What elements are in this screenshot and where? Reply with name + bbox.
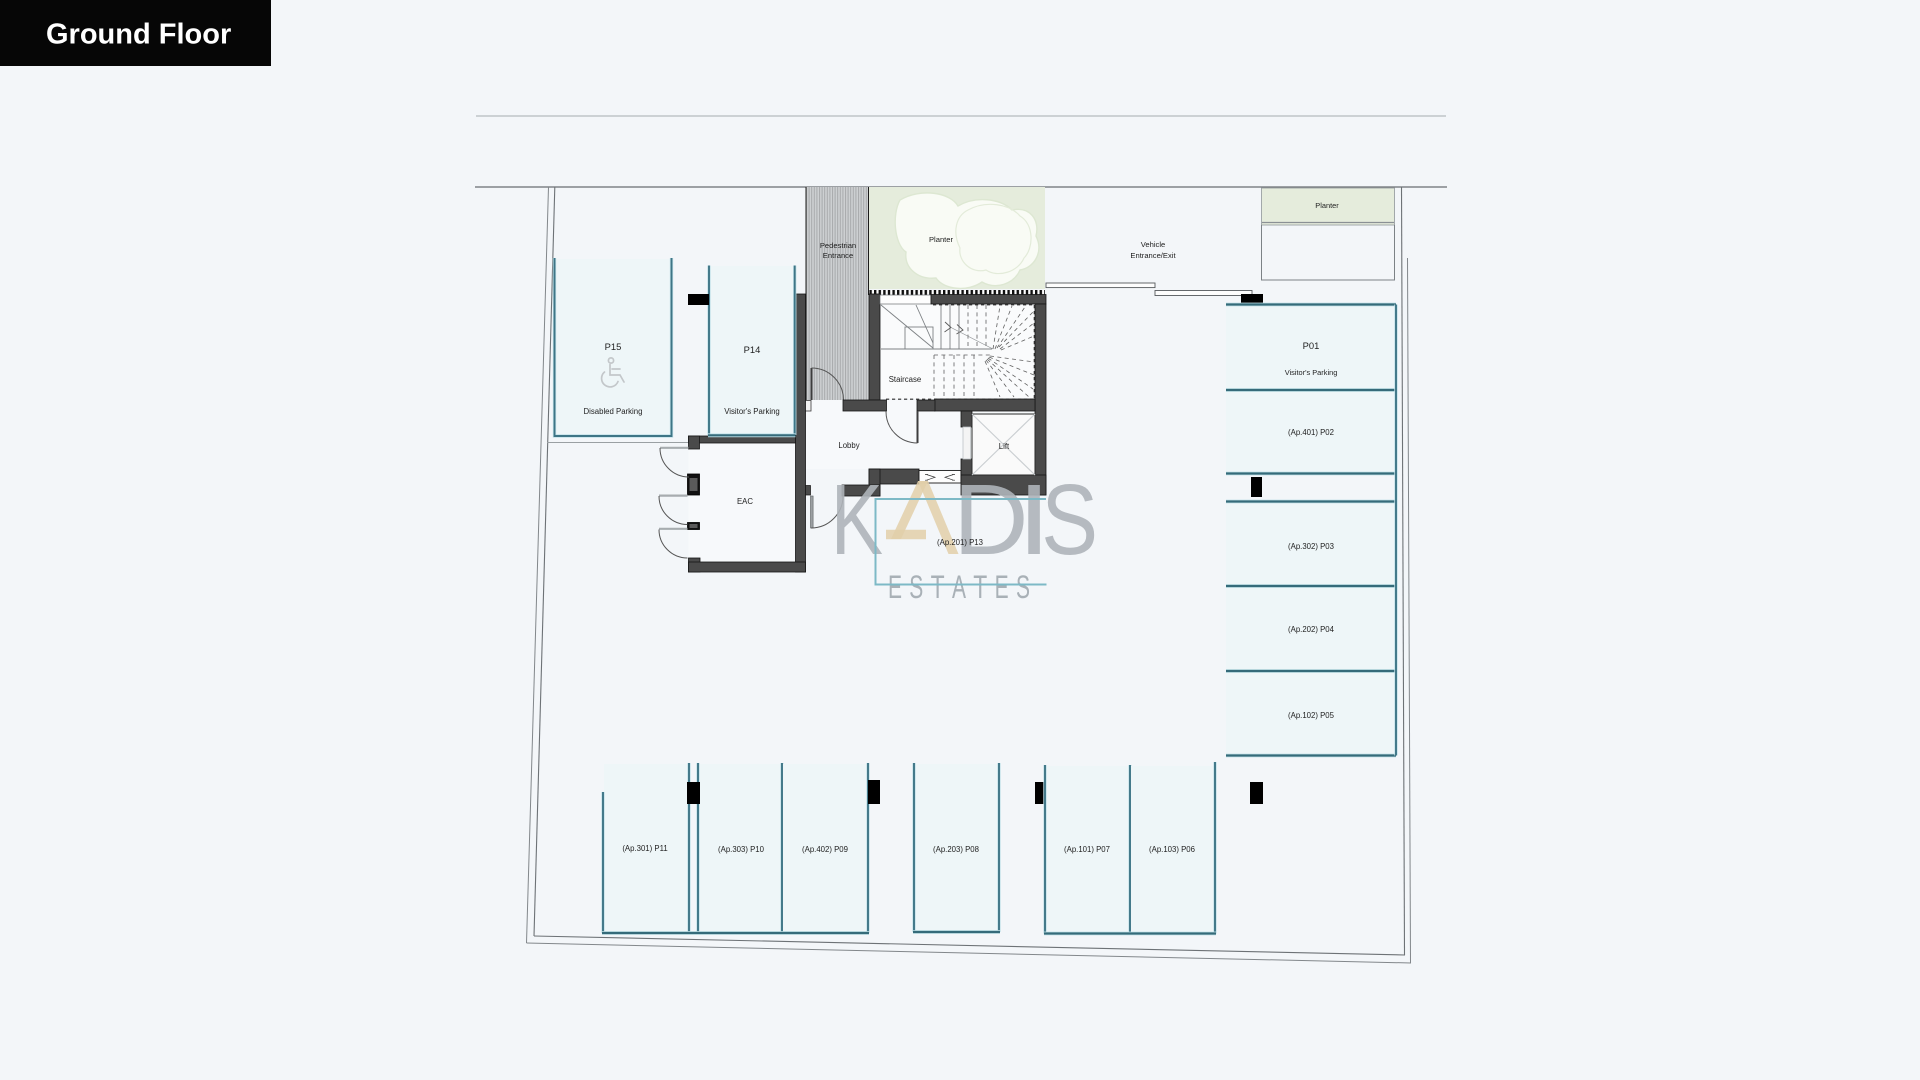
svg-text:P01: P01 xyxy=(1303,340,1320,351)
svg-text:(Ap.202) P04: (Ap.202) P04 xyxy=(1288,625,1335,634)
svg-text:T: T xyxy=(931,569,945,605)
svg-text:P14: P14 xyxy=(744,344,761,355)
svg-text:(Ap.101) P07: (Ap.101) P07 xyxy=(1064,845,1110,854)
svg-text:(Ap.302) P03: (Ap.302) P03 xyxy=(1288,542,1334,551)
svg-text:Visitor's Parking: Visitor's Parking xyxy=(1285,368,1338,377)
svg-text:(Ap.401) P02: (Ap.401) P02 xyxy=(1288,428,1334,437)
svg-text:Entrance: Entrance xyxy=(823,251,853,260)
svg-text:P15: P15 xyxy=(605,341,622,352)
svg-text:A: A xyxy=(952,569,966,605)
svg-text:T: T xyxy=(973,569,987,605)
svg-text:Planter: Planter xyxy=(1315,201,1339,210)
svg-text:(Ap.102) P05: (Ap.102) P05 xyxy=(1288,711,1335,720)
svg-text:S: S xyxy=(1041,464,1098,576)
svg-text:Vehicle: Vehicle xyxy=(1141,240,1166,249)
svg-text:(Ap.103) P06: (Ap.103) P06 xyxy=(1149,845,1195,854)
svg-text:EAC: EAC xyxy=(737,497,753,506)
svg-text:Ground Floor: Ground Floor xyxy=(46,19,231,51)
svg-text:(Ap.201) P13: (Ap.201) P13 xyxy=(937,538,983,547)
svg-text:Pedestrian: Pedestrian xyxy=(820,241,856,250)
svg-text:S: S xyxy=(1016,569,1030,605)
svg-text:Planter: Planter xyxy=(929,235,954,244)
svg-text:Lobby: Lobby xyxy=(838,441,859,450)
svg-text:Disabled Parking: Disabled Parking xyxy=(584,407,643,416)
svg-text:(Ap.303) P10: (Ap.303) P10 xyxy=(718,845,765,854)
svg-text:Entrance/Exit: Entrance/Exit xyxy=(1130,251,1176,260)
svg-text:(Ap.203) P08: (Ap.203) P08 xyxy=(933,845,979,854)
svg-text:Visitor's Parking: Visitor's Parking xyxy=(724,407,780,416)
svg-text:E: E xyxy=(995,569,1009,605)
svg-text:E: E xyxy=(888,569,902,605)
svg-text:(Ap.402) P09: (Ap.402) P09 xyxy=(802,845,848,854)
svg-text:S: S xyxy=(909,569,923,605)
svg-text:Staircase: Staircase xyxy=(889,375,922,384)
svg-text:(Ap.301) P11: (Ap.301) P11 xyxy=(622,844,667,853)
svg-text:Lift: Lift xyxy=(999,442,1010,451)
